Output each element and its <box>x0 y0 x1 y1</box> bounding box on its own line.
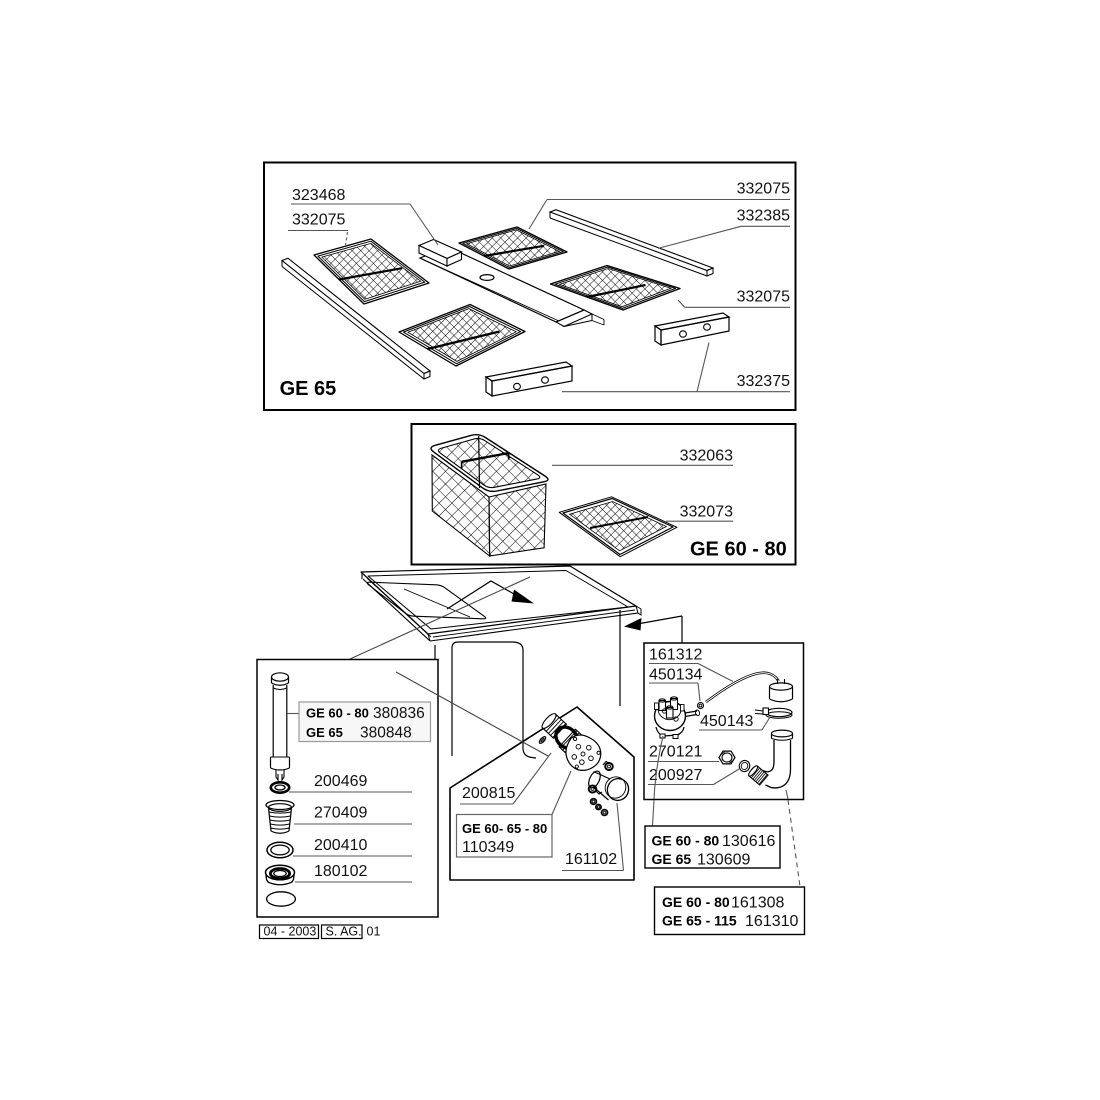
svg-text:450134: 450134 <box>649 667 702 684</box>
svg-text:GE 60 - 80: GE 60 - 80 <box>690 539 787 561</box>
svg-text:332375: 332375 <box>737 373 790 390</box>
svg-text:323468: 323468 <box>292 187 345 204</box>
svg-text:161312: 161312 <box>649 647 702 664</box>
svg-text:GE 60 - 80: GE 60 - 80 <box>306 706 369 721</box>
svg-text:161308: 161308 <box>731 895 784 912</box>
svg-text:161310: 161310 <box>745 913 798 930</box>
svg-text:180102: 180102 <box>314 863 367 880</box>
svg-text:380836: 380836 <box>373 705 425 722</box>
svg-text:200469: 200469 <box>314 773 367 790</box>
svg-text:GE 65: GE 65 <box>306 725 343 740</box>
svg-text:380848: 380848 <box>360 725 412 742</box>
svg-text:01: 01 <box>367 925 381 939</box>
svg-text:GE 65 - 115: GE 65 - 115 <box>662 913 737 929</box>
svg-text:450143: 450143 <box>700 713 753 730</box>
svg-text:S. AG.: S. AG. <box>326 925 362 939</box>
svg-text:110349: 110349 <box>462 839 514 856</box>
svg-text:200815: 200815 <box>462 785 515 802</box>
svg-text:GE 60- 65 - 80: GE 60- 65 - 80 <box>462 821 547 836</box>
svg-text:GE 60 - 80: GE 60 - 80 <box>652 833 720 849</box>
svg-text:04 - 2003: 04 - 2003 <box>264 925 317 939</box>
svg-text:161102: 161102 <box>565 851 617 868</box>
svg-text:270121: 270121 <box>649 744 702 761</box>
svg-text:332063: 332063 <box>680 448 733 465</box>
svg-text:GE 65: GE 65 <box>280 378 337 400</box>
svg-text:130609: 130609 <box>697 852 750 869</box>
svg-text:GE 60 - 80: GE 60 - 80 <box>662 894 730 910</box>
svg-text:332075: 332075 <box>292 212 345 229</box>
svg-text:332073: 332073 <box>680 504 733 521</box>
svg-text:332385: 332385 <box>737 208 790 225</box>
svg-text:332075: 332075 <box>737 289 790 306</box>
svg-text:130616: 130616 <box>722 833 775 850</box>
svg-text:200410: 200410 <box>314 837 367 854</box>
svg-text:GE 65: GE 65 <box>652 851 692 867</box>
svg-text:270409: 270409 <box>314 805 367 822</box>
svg-text:332075: 332075 <box>737 181 790 198</box>
